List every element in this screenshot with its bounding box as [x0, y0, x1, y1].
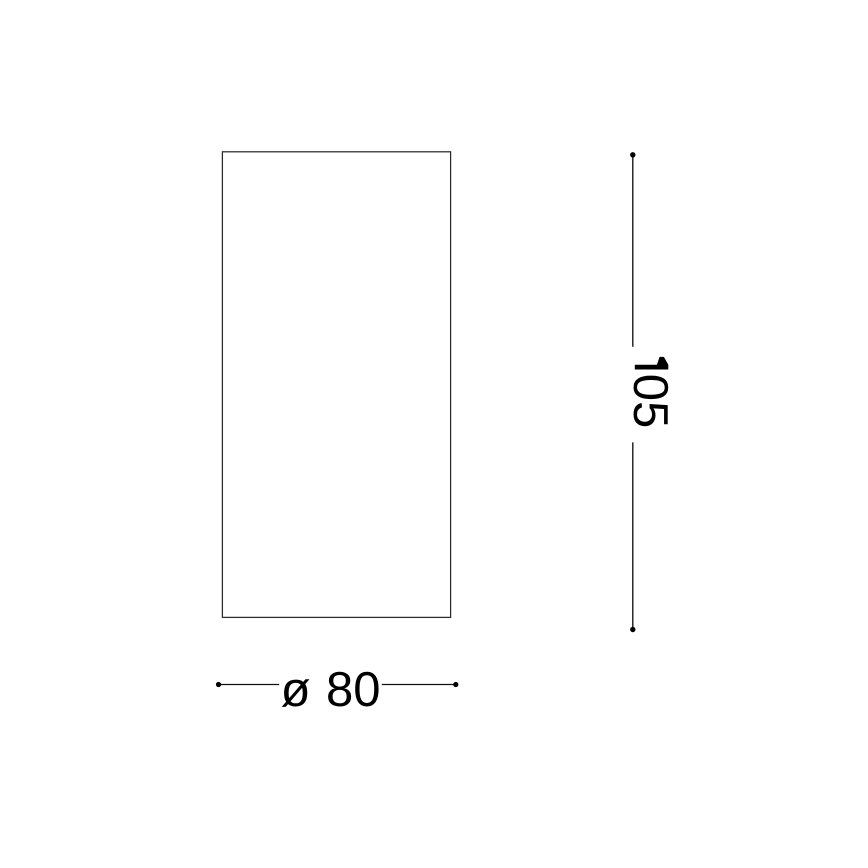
svg-text:05: 05 — [623, 374, 677, 429]
svg-text:ø: ø — [281, 663, 311, 717]
svg-text:80: 80 — [326, 663, 381, 717]
